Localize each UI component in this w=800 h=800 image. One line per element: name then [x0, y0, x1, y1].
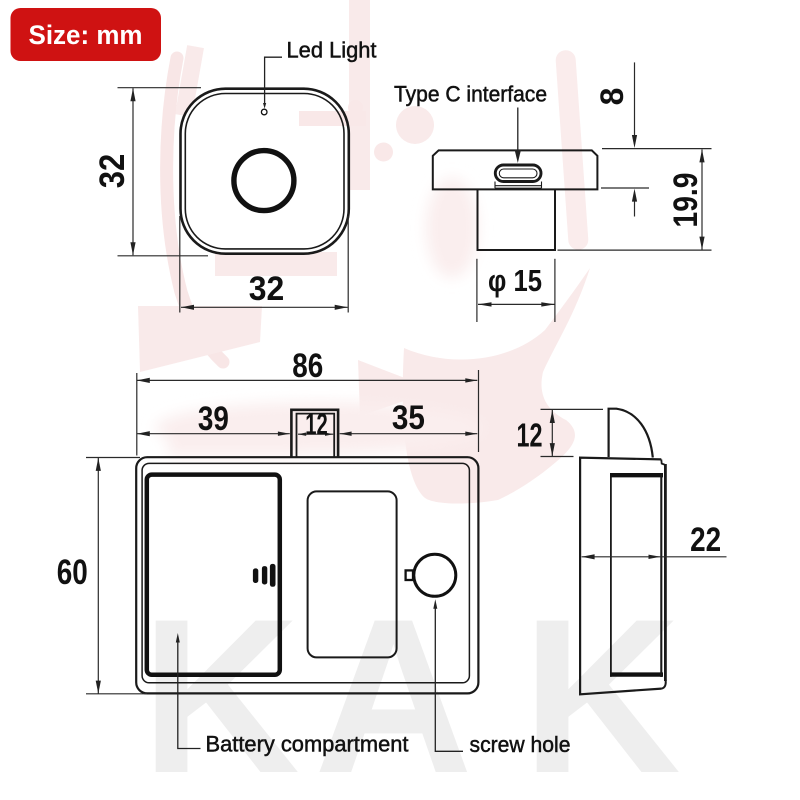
svg-text:32: 32: [249, 270, 285, 308]
svg-text:φ 15: φ 15: [488, 263, 542, 298]
svg-text:Type C interface: Type C interface: [394, 82, 547, 107]
svg-text:screw hole: screw hole: [470, 732, 571, 757]
svg-text:8: 8: [594, 88, 630, 106]
svg-text:35: 35: [392, 399, 425, 437]
svg-text:22: 22: [690, 521, 721, 559]
svg-text:19.9: 19.9: [667, 173, 705, 228]
svg-text:K: K: [141, 573, 300, 800]
svg-text:86: 86: [292, 347, 323, 385]
svg-text:Size: mm: Size: mm: [29, 20, 143, 50]
svg-text:12: 12: [517, 416, 543, 453]
svg-text:K: K: [522, 573, 681, 800]
svg-text:A: A: [314, 573, 473, 800]
svg-text:39: 39: [198, 400, 229, 438]
svg-text:12: 12: [305, 407, 328, 442]
svg-text:60: 60: [57, 553, 88, 592]
svg-text:Battery compartment: Battery compartment: [206, 732, 410, 757]
svg-text:Led Light: Led Light: [287, 38, 378, 63]
svg-text:32: 32: [93, 154, 132, 189]
